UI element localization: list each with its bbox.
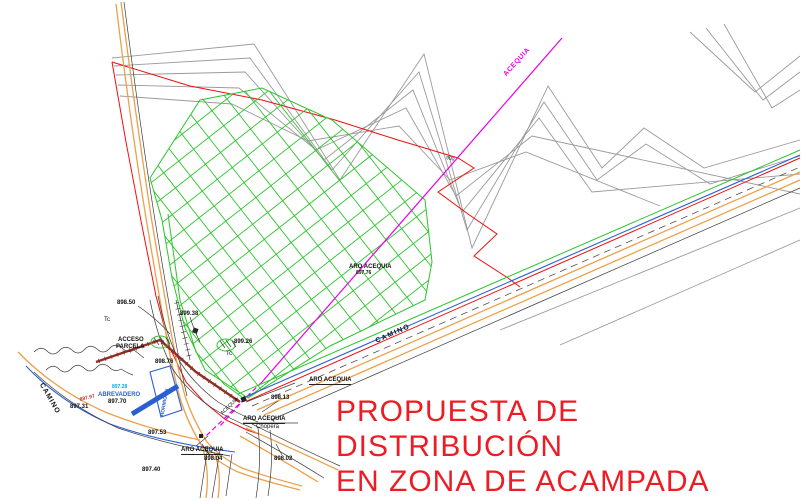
aro-acequia-low-label: ARO ACEQUIA bbox=[309, 377, 351, 385]
tc-label-left: Tc bbox=[104, 317, 110, 323]
aro-acequia-junction-label: ARO ACEQUIA bbox=[243, 416, 285, 424]
elevation-897-53: 897.53 bbox=[148, 430, 166, 436]
elevation-898-50: 898.50 bbox=[117, 300, 135, 306]
aro-acequia-marker-2 bbox=[199, 434, 203, 438]
plan-title-line1: PROPUESTA DE DISTRIBUCIÓN bbox=[336, 394, 802, 464]
tc-label-mid: Tc bbox=[226, 351, 232, 357]
aro-acequia-mid-elevation: 897.76 bbox=[356, 271, 371, 276]
elevation-898-76: 898.76 bbox=[155, 359, 173, 365]
acceso-parcela-label-line1: ACCESO bbox=[118, 337, 144, 343]
elevation-898-02: 898.02 bbox=[274, 456, 292, 462]
elevation-897-31: 897.31 bbox=[70, 404, 88, 410]
acceso-parcela-label-line2: PARCELA bbox=[116, 344, 145, 350]
structure-marker bbox=[192, 327, 198, 333]
elevation-898-13: 898.13 bbox=[271, 395, 289, 401]
abrevadero-elevation: 897.70 bbox=[108, 399, 126, 405]
site-plan-canvas: ACEQUIA CAMINO CAMINO ACCESO PARCELA ARO… bbox=[0, 0, 802, 500]
red-boundary-lines bbox=[112, 62, 800, 434]
plan-title-line2: EN ZONA DE ACAMPADA bbox=[336, 464, 802, 499]
left-road bbox=[116, 2, 338, 498]
abrevadero-elevation-top: 897.28 bbox=[112, 385, 127, 390]
elevation-897-40: 897.40 bbox=[142, 467, 160, 473]
elevation-899-26: 899.26 bbox=[234, 339, 252, 345]
abrevadero-label: ABREVADERO bbox=[98, 392, 140, 398]
elevation-899-38: 899.38 bbox=[180, 311, 198, 317]
contour-lines bbox=[112, 24, 800, 345]
aro-acequia-bottom-label: ARO ACEQUIA bbox=[181, 447, 223, 455]
aro-acequia-bottom-elevation: 898.04 bbox=[204, 456, 222, 462]
plan-title: PROPUESTA DE DISTRIBUCIÓN EN ZONA DE ACA… bbox=[336, 394, 802, 499]
chopera-label: Chopera bbox=[256, 424, 279, 430]
